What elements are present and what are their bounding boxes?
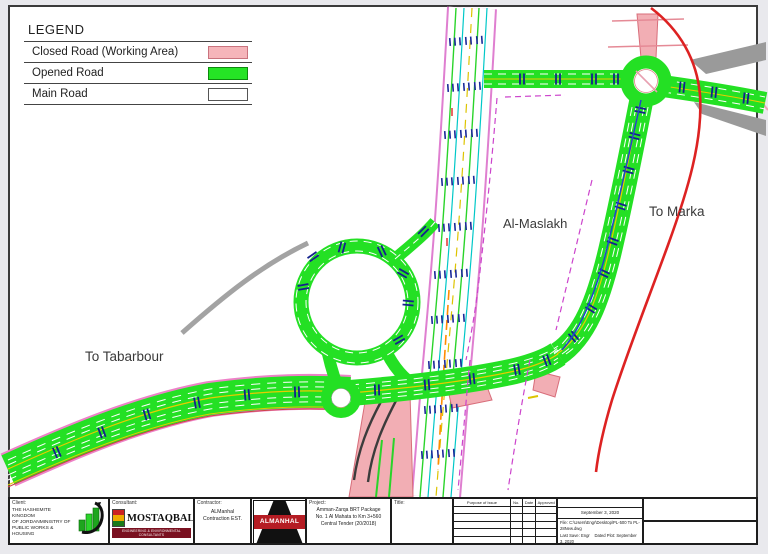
project-line: No. 1 Al Mahata to Km 3+560 [309,514,388,521]
last-save: Last Save: Engr [560,533,590,538]
title-label: Title: [394,500,450,506]
consultant-cell: Consultant: MOSTAQBAL ENGINEERING & ENVI… [110,499,195,543]
empty-box [644,499,756,522]
issue-table-row [454,529,556,536]
issue-table-row [454,507,556,514]
client-line: PUBLIC WORKS & HOUSING [12,526,75,538]
drawing-viewer: LEGEND Closed Road (Working Area) Opened… [0,0,768,554]
legend-item-closed-road: Closed Road (Working Area) [24,42,252,63]
contractor-label: Contractor: [197,500,248,506]
plot-file-info: File: C:\Users\Engr\Desktop\PL-500 To PL… [558,519,642,543]
issue-table-row [454,522,556,529]
issue-table-header: Purpose of Issue No. Date Approved [454,499,556,507]
consultant-label: Consultant: [112,500,191,506]
title-cell: Title: [392,499,454,543]
legend-item-label: Closed Road (Working Area) [32,46,178,58]
client-label: Client: [12,500,75,506]
legend-title: LEGEND [24,20,252,41]
plot-info-right [644,499,756,543]
empty-box [558,499,642,508]
consultant-name: MOSTAQBAL [127,513,194,524]
issue-table-row [454,537,556,543]
project-line: Amman-Zarqa BRT Package [309,507,388,514]
opened-road-swatch [208,67,248,80]
legend-item-label: Main Road [32,88,88,100]
file-path: File: C:\Users\Engr\Desktop\PL-500 To PL… [560,520,640,533]
project-line: Central Tender (20/2018) [309,521,388,528]
legend-item-label: Opened Road [32,67,104,79]
legend-item-opened-road: Opened Road [24,63,252,84]
almanhal-logo-cell: ALMANHAL [252,499,307,543]
purpose-of-issue-header: Purpose of Issue [454,499,511,506]
client-cell: Client: THE HASHEMITE KINGDOM OF JORDANM… [10,499,110,543]
plot-info-left: September 3, 2020 File: C:\Users\Engr\De… [558,499,644,543]
legend: LEGEND Closed Road (Working Area) Opened… [24,20,252,105]
closed-road-swatch [208,46,248,59]
project-cell: Project: Amman-Zarqa BRT Package No. 1 A… [307,499,392,543]
label-to-tabarbour: To Tabarbour [85,349,164,364]
central-main-road-corridor [420,8,487,497]
roundabout-south [326,383,356,413]
plot-date: September 3, 2020 [558,508,642,519]
contractor-cell: Contractor: ALManhal Contraction EST. [195,499,252,543]
legend-table: Closed Road (Working Area) Opened Road M… [24,41,252,105]
almanhal-logo: ALMANHAL [253,500,306,543]
label-al-maslakh: Al-Maslakh [503,216,567,231]
title-block: Client: THE HASHEMITE KINGDOM OF JORDANM… [8,497,758,545]
project-label: Project: [309,500,388,506]
ministry-logo [76,500,106,534]
issue-table-row [454,514,556,521]
contractor-name: ALManhal Contraction EST. [197,509,248,523]
no-header: No. [511,499,523,506]
issue-table: Purpose of Issue No. Date Approved [454,499,558,543]
plot-info-cell: September 3, 2020 File: C:\Users\Engr\De… [558,499,756,543]
date-header: Date [523,499,537,506]
main-road-swatch [208,88,248,101]
roundabout-north [627,62,665,100]
approved-header: Approved [536,499,556,506]
mostaqbal-logo [112,509,125,527]
empty-box [644,522,756,543]
legend-item-main-road: Main Road [24,84,252,105]
label-to-marka: To Marka [649,204,705,219]
almanhal-logo-text: ALMANHAL [254,515,305,528]
client-line: THE HASHEMITE KINGDOM [12,508,75,520]
consultant-tagline: ENGINEERING & ENVIRONMENTAL CONSULTANTS [112,528,191,538]
